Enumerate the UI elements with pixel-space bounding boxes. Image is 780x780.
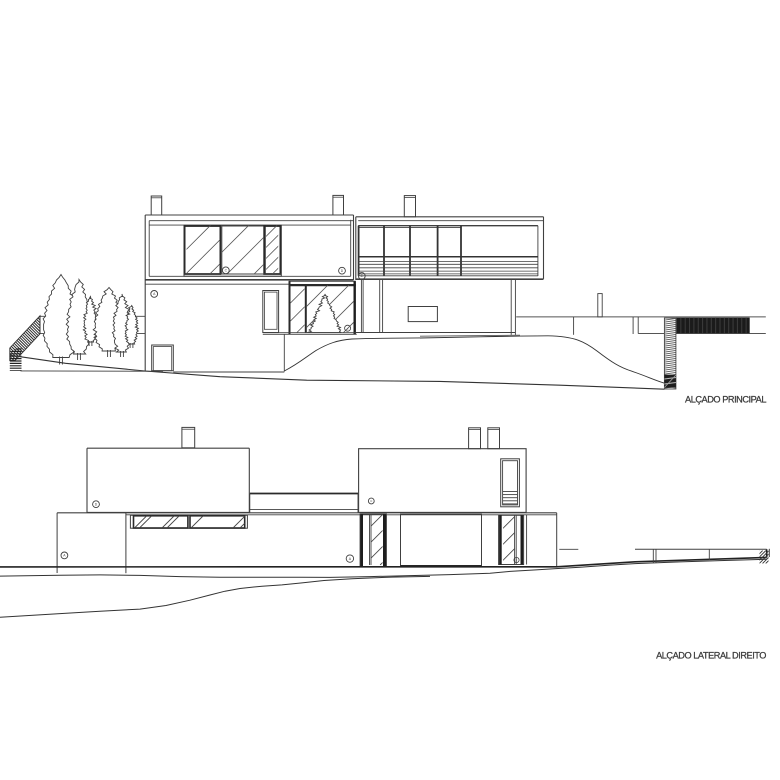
svg-text:C: C	[370, 499, 372, 503]
svg-text:ALÇADO LATERAL DIREITO: ALÇADO LATERAL DIREITO	[656, 651, 766, 661]
svg-text:ALÇADO PRINCIPAL: ALÇADO PRINCIPAL	[685, 395, 766, 405]
